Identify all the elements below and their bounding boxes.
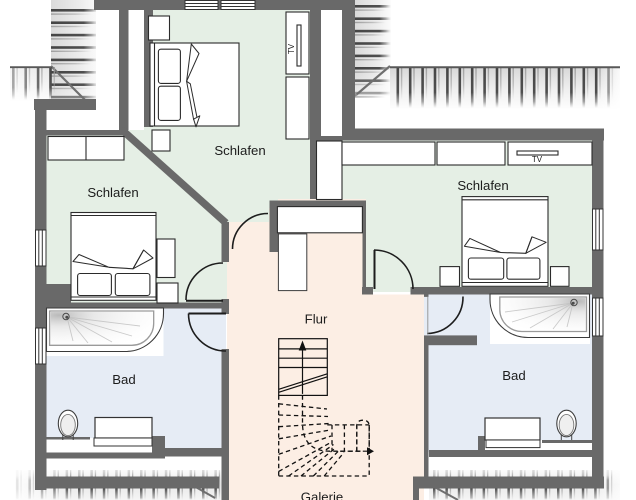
svg-text:Bad: Bad <box>502 368 525 383</box>
svg-text:Bad: Bad <box>112 372 135 387</box>
svg-text:Schlafen: Schlafen <box>87 185 138 200</box>
svg-text:Flur: Flur <box>305 312 328 327</box>
svg-text:Schlafen: Schlafen <box>214 143 265 158</box>
svg-text:Schlafen: Schlafen <box>457 178 508 193</box>
svg-text:TV: TV <box>532 155 543 164</box>
svg-text:Galerie: Galerie <box>301 490 344 500</box>
svg-text:TV: TV <box>287 43 296 54</box>
